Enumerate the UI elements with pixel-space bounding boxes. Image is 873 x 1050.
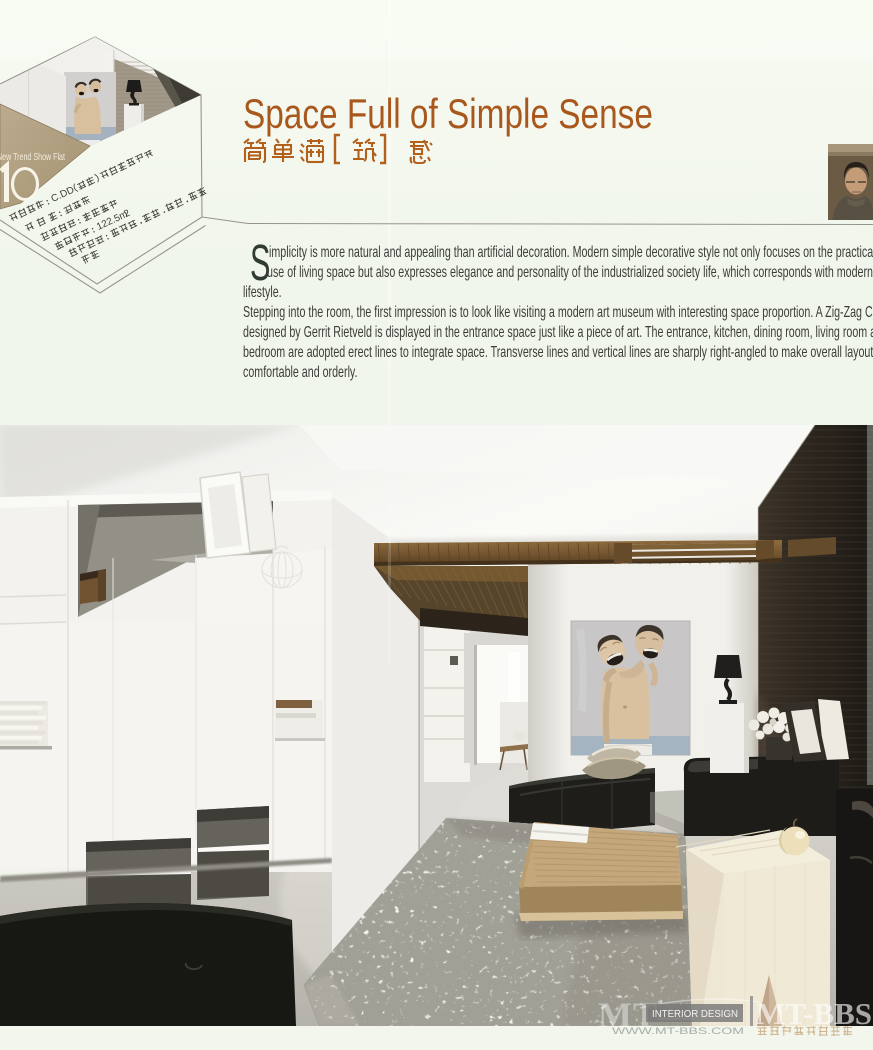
svg-text:New Trend Show Flat: New Trend Show Flat: [0, 151, 65, 163]
svg-text:INTERIOR DESIGN: INTERIOR DESIGN: [652, 1008, 738, 1020]
svg-text:WWW.MT-BBS.COM: WWW.MT-BBS.COM: [612, 1026, 744, 1036]
svg-text:MT-BBS: MT-BBS: [756, 996, 872, 1031]
